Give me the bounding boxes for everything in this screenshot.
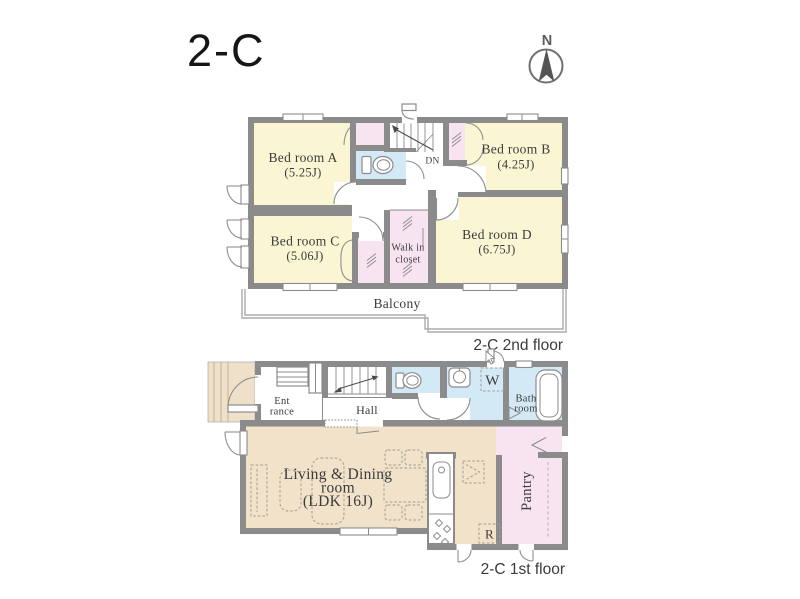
balcony-label: Balcony	[373, 296, 420, 311]
floor-plan-drawing: 2-C N	[0, 0, 800, 599]
pantry-back-door	[519, 544, 535, 561]
toilet-icon-2f	[362, 157, 393, 174]
closet-b	[449, 123, 465, 165]
bedroom-d-label: Bed room D	[462, 227, 532, 242]
entrance-label-2: rance	[270, 407, 294, 418]
bedroom-a-size: (5.25J)	[284, 166, 321, 180]
stairs-dn-label: DN	[425, 157, 439, 167]
second-floor-plan: Bed room A (5.25J) Bed room B (4.25J) Be…	[227, 104, 568, 354]
entrance-label-1: Ent	[274, 396, 289, 407]
top-vent-door	[402, 104, 417, 124]
casement-window	[227, 246, 249, 268]
kitchen-back-door	[457, 544, 472, 562]
compass-icon: N	[530, 33, 563, 83]
bathroom-window	[516, 361, 532, 368]
door-bedroom-c	[359, 217, 383, 241]
washer-label: W	[485, 373, 500, 389]
casement-window	[227, 185, 249, 204]
door-bedroom-a	[334, 182, 356, 204]
bathtub-icon	[536, 370, 562, 421]
entrance-porch	[208, 362, 255, 422]
casement-window	[227, 219, 249, 239]
bedroom-c-label: Bed room C	[271, 234, 340, 249]
bedroom-d-size: (6.75J)	[478, 243, 515, 257]
first-floor-plan: W	[208, 349, 568, 578]
bedroom-b-label: Bed room B	[482, 142, 551, 157]
bedroom-b-size: (4.25J)	[497, 158, 534, 172]
walk-in-closet-label-1: Walk in	[391, 243, 424, 254]
washbasin-icon	[449, 368, 470, 387]
floor-plan-page: 2-C N	[0, 0, 800, 599]
bedroom-c-size: (5.06J)	[286, 249, 323, 263]
balcony: Balcony	[242, 289, 566, 332]
pantry-label: Pantry	[519, 471, 535, 511]
ldk-label-3: (LDK 16J)	[303, 493, 373, 510]
walk-in-closet-label-2: closet	[395, 255, 420, 266]
bedroom-a-label: Bed room A	[269, 150, 338, 165]
door-toilet-2f	[406, 161, 424, 179]
door-bedroom-d	[436, 197, 459, 220]
north-label: N	[542, 33, 552, 49]
kitchen-counter	[428, 453, 454, 546]
toilet-icon-1f	[396, 373, 421, 389]
bathroom-label-2: room	[514, 404, 537, 415]
ldk-window-west	[225, 431, 247, 455]
closet-a	[356, 123, 384, 147]
door-bedroom-b	[449, 166, 486, 194]
door-washroom	[447, 398, 470, 420]
door-toilet-1f	[418, 397, 440, 419]
plan-title: 2-C	[187, 25, 266, 76]
first-floor-caption: 2-C 1st floor	[481, 561, 565, 578]
hall-label: Hall	[356, 403, 378, 417]
refrigerator-label: R	[485, 527, 494, 542]
